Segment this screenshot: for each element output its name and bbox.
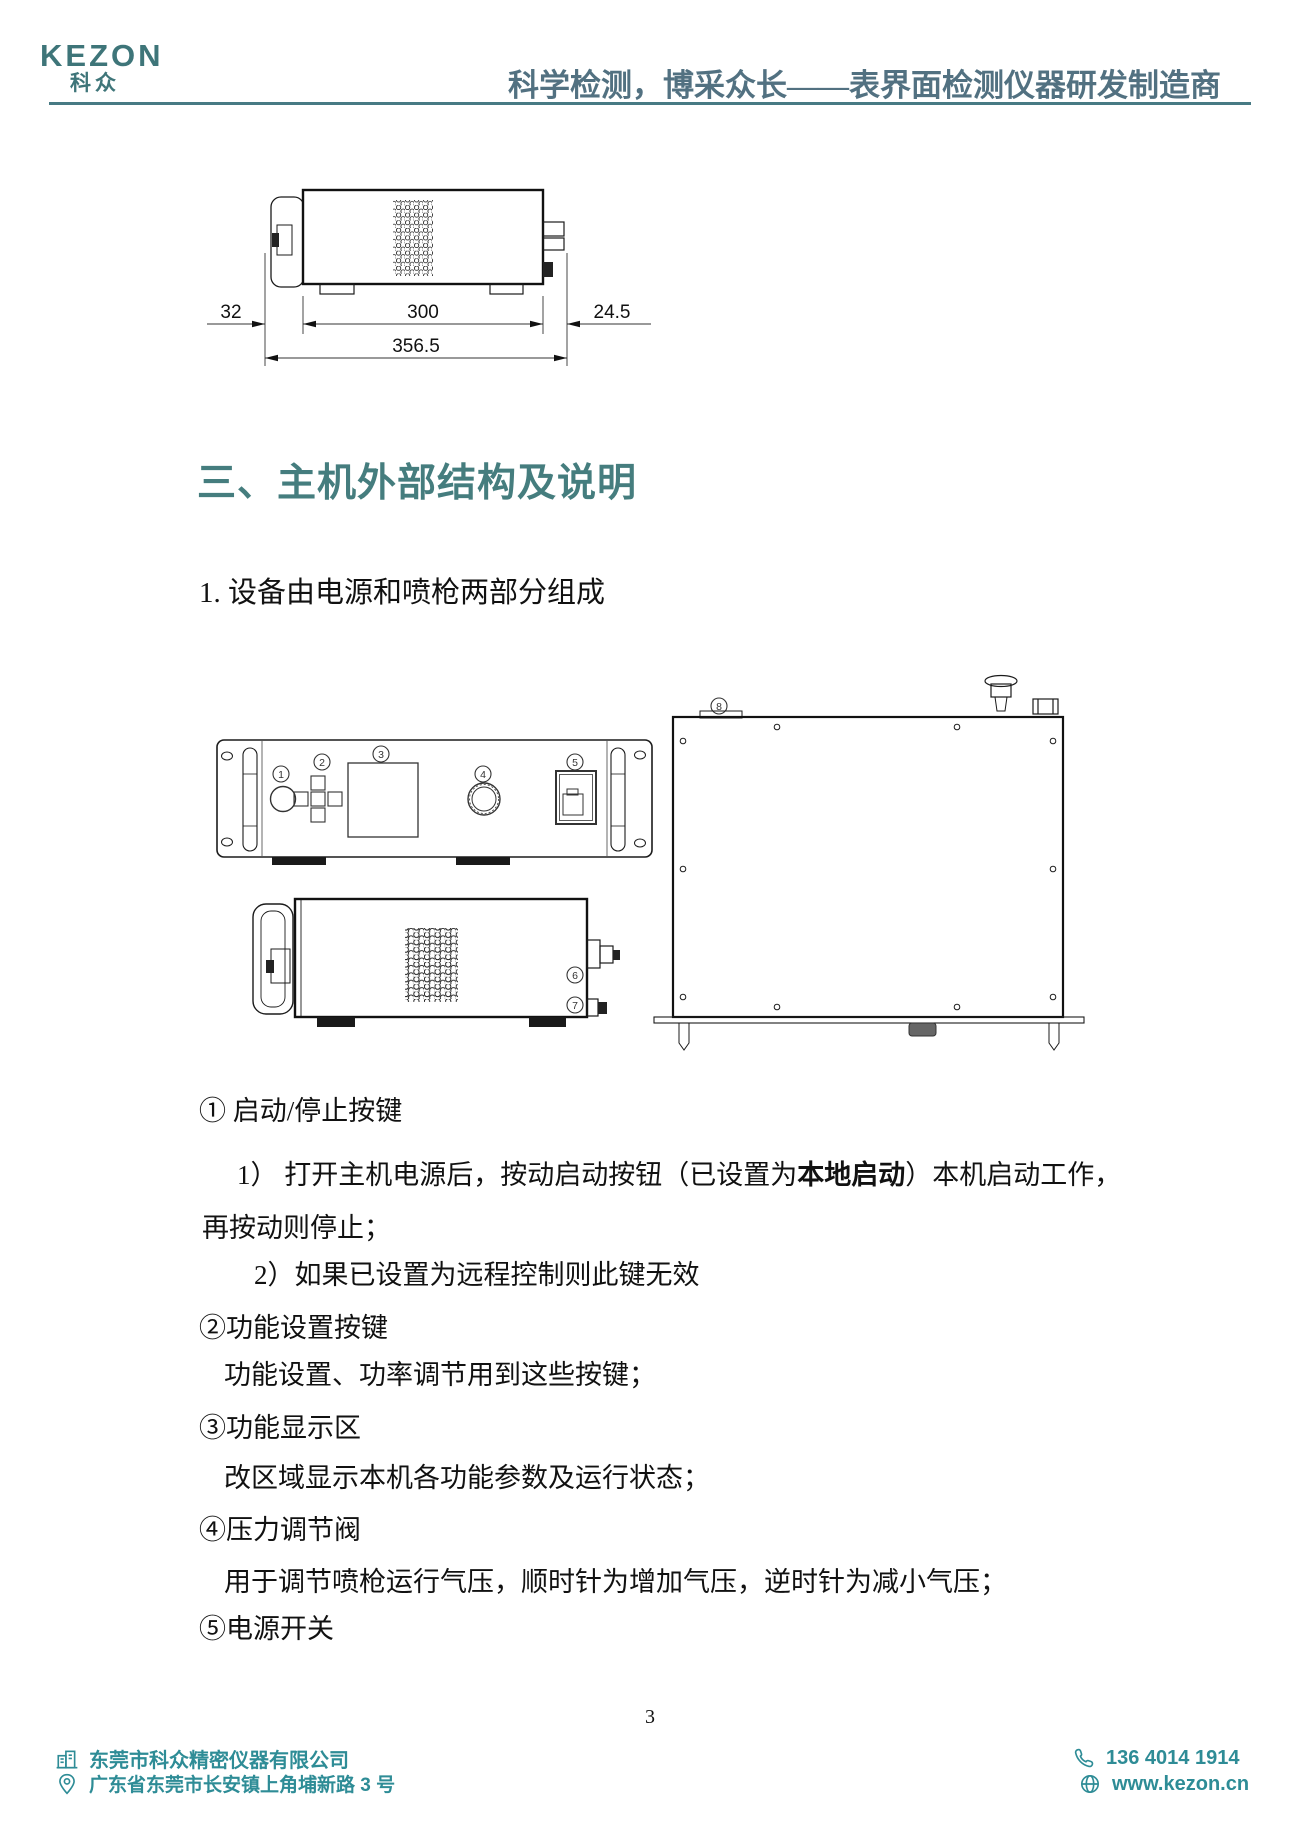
panel-foot [456,857,510,865]
chassis-handle [253,904,293,1014]
company-logo: KEZON 科众 [40,40,150,95]
logo-wordmark: KEZON [40,40,150,73]
function-keys-dpad [294,776,342,822]
mount-hole [635,751,646,759]
globe-icon [1078,1772,1102,1796]
dim-label-356-5: 356.5 [392,336,440,357]
header-divider [49,102,1251,105]
location-pin-icon [55,1772,79,1796]
marker-4-label: 4 [480,769,486,781]
marker-6-label: 6 [572,970,578,982]
vent-holes [405,928,458,1002]
rear-connector-lower [587,999,607,1016]
mount-peg [679,1023,689,1050]
marker-1-label: 1 [278,769,284,781]
marker-8-label: 8 [716,701,722,713]
footer-phone: 136 4014 1914 [1106,1747,1239,1770]
mount-hole [222,838,233,846]
chassis-body [303,190,543,294]
screw-nut [1033,699,1058,714]
note-line-1: ① 启动/停止按键 [199,1097,402,1127]
dim-label-24-5: 24.5 [594,302,631,323]
intro-line: 1. 设备由电源和喷枪两部分组成 [199,569,605,611]
footer-company: 东莞市科众精密仪器有限公司 [89,1744,349,1773]
chassis-foot [529,1017,566,1027]
chassis-handle [271,197,304,287]
footer-company-row: 东莞市科众精密仪器有限公司 [55,1744,349,1773]
footer-address-row: 广东省东莞市长安镇上角埔新路 3 号 [55,1770,395,1797]
power-switch [556,771,596,824]
mount-hole [222,752,233,760]
front-panel-drawing: 1 2 3 4 5 [212,736,660,870]
note-line-6: 功能设置、功率调节用到这些按键； [224,1361,656,1391]
top-view-drawing: 8 [652,662,1104,1062]
foot-tab [320,284,354,294]
rear-connectors [543,222,564,277]
note-line-5: ②功能设置按键 [199,1314,388,1344]
marker-3-label: 3 [378,749,384,761]
note-line-3: 再按动则停止； [202,1214,391,1244]
ground-screw [985,676,1017,712]
note-line-11: ⑤电源开关 [199,1615,334,1645]
vent-holes [393,200,433,276]
rack-handle-slot [611,748,625,851]
note-line-4: 2）如果已设置为远程控制则此键无效 [254,1261,700,1291]
mount-peg [1049,1023,1059,1050]
section-heading: 三、主机外部结构及说明 [197,452,637,508]
footer-website: www.kezon.cn [1112,1773,1249,1796]
chassis-top-cover [673,717,1063,1017]
chassis-foot [317,1017,355,1027]
footer-address: 广东省东莞市长安镇上角埔新路 3 号 [89,1770,395,1797]
pressure-knob [468,783,500,815]
page-number: 3 [0,1706,1300,1729]
dim-label-300: 300 [407,302,439,323]
start-stop-button [271,787,296,812]
panel-foot [272,857,326,865]
note-line-2: 1） 打开主机电源后，按动启动按钮（已设置为本地启动）本机启动工作， [237,1161,1121,1191]
building-icon [55,1747,79,1771]
marker-5-label: 5 [572,757,578,769]
note-line-7: ③功能显示区 [199,1414,361,1444]
logo-chinese-name: 科众 [40,73,150,95]
note-line-9: ④压力调节阀 [199,1516,361,1546]
dim-label-32: 32 [220,302,241,323]
header-tagline: 科学检测，博采众长——表界面检测仪器研发制造商 [508,60,1221,105]
rear-connector-upper [587,940,620,968]
marker-7-label: 7 [572,1000,578,1012]
dimension-drawing-side-view: 32 300 24.5 356.5 [195,182,665,372]
mount-hole [635,839,646,847]
display-area [348,763,418,837]
foot-tab [490,284,523,294]
rack-handle-slot [243,748,257,851]
side-view-drawing: 6 7 [248,894,628,1034]
cover-screws [680,724,1056,1010]
center-foot [909,1023,936,1036]
phone-icon [1072,1746,1096,1770]
marker-2-label: 2 [319,757,325,769]
note-line-10: 用于调节喷枪运行气压，顺时针为增加气压，逆时针为减小气压； [224,1568,1007,1598]
footer-phone-row: 136 4014 1914 [1072,1746,1239,1770]
panel-face [217,740,652,857]
note-line-8: 改区域显示本机各功能参数及运行状态； [224,1464,710,1494]
footer-website-row: www.kezon.cn [1078,1772,1249,1796]
